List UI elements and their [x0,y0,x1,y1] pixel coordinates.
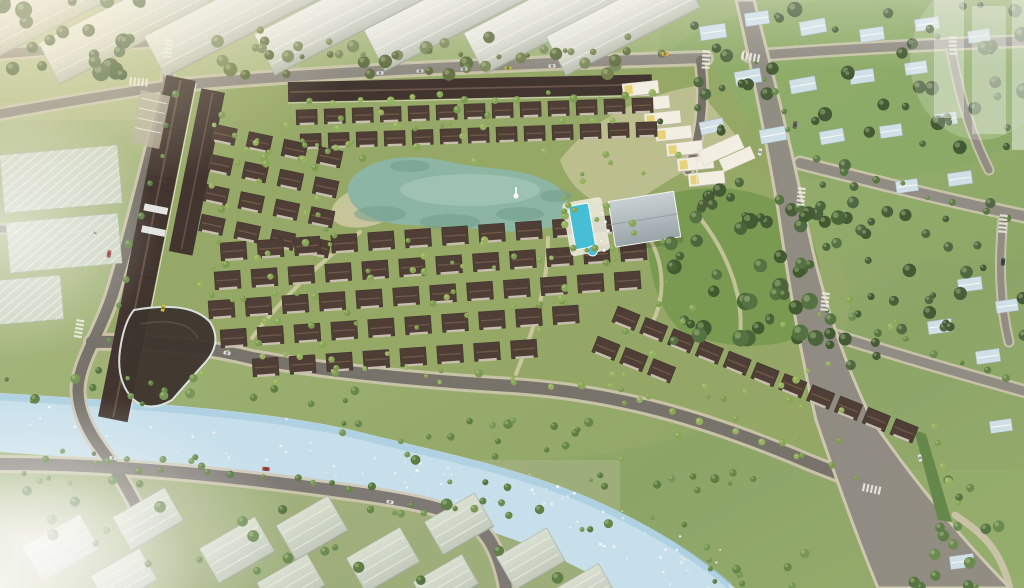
atmosphere-haze [0,0,1024,588]
render-canvas: Aerial 3D master-plan render: gated vill… [0,0,1024,588]
aerial-masterplan-render: Aerial 3D master-plan render: gated vill… [0,0,1024,588]
